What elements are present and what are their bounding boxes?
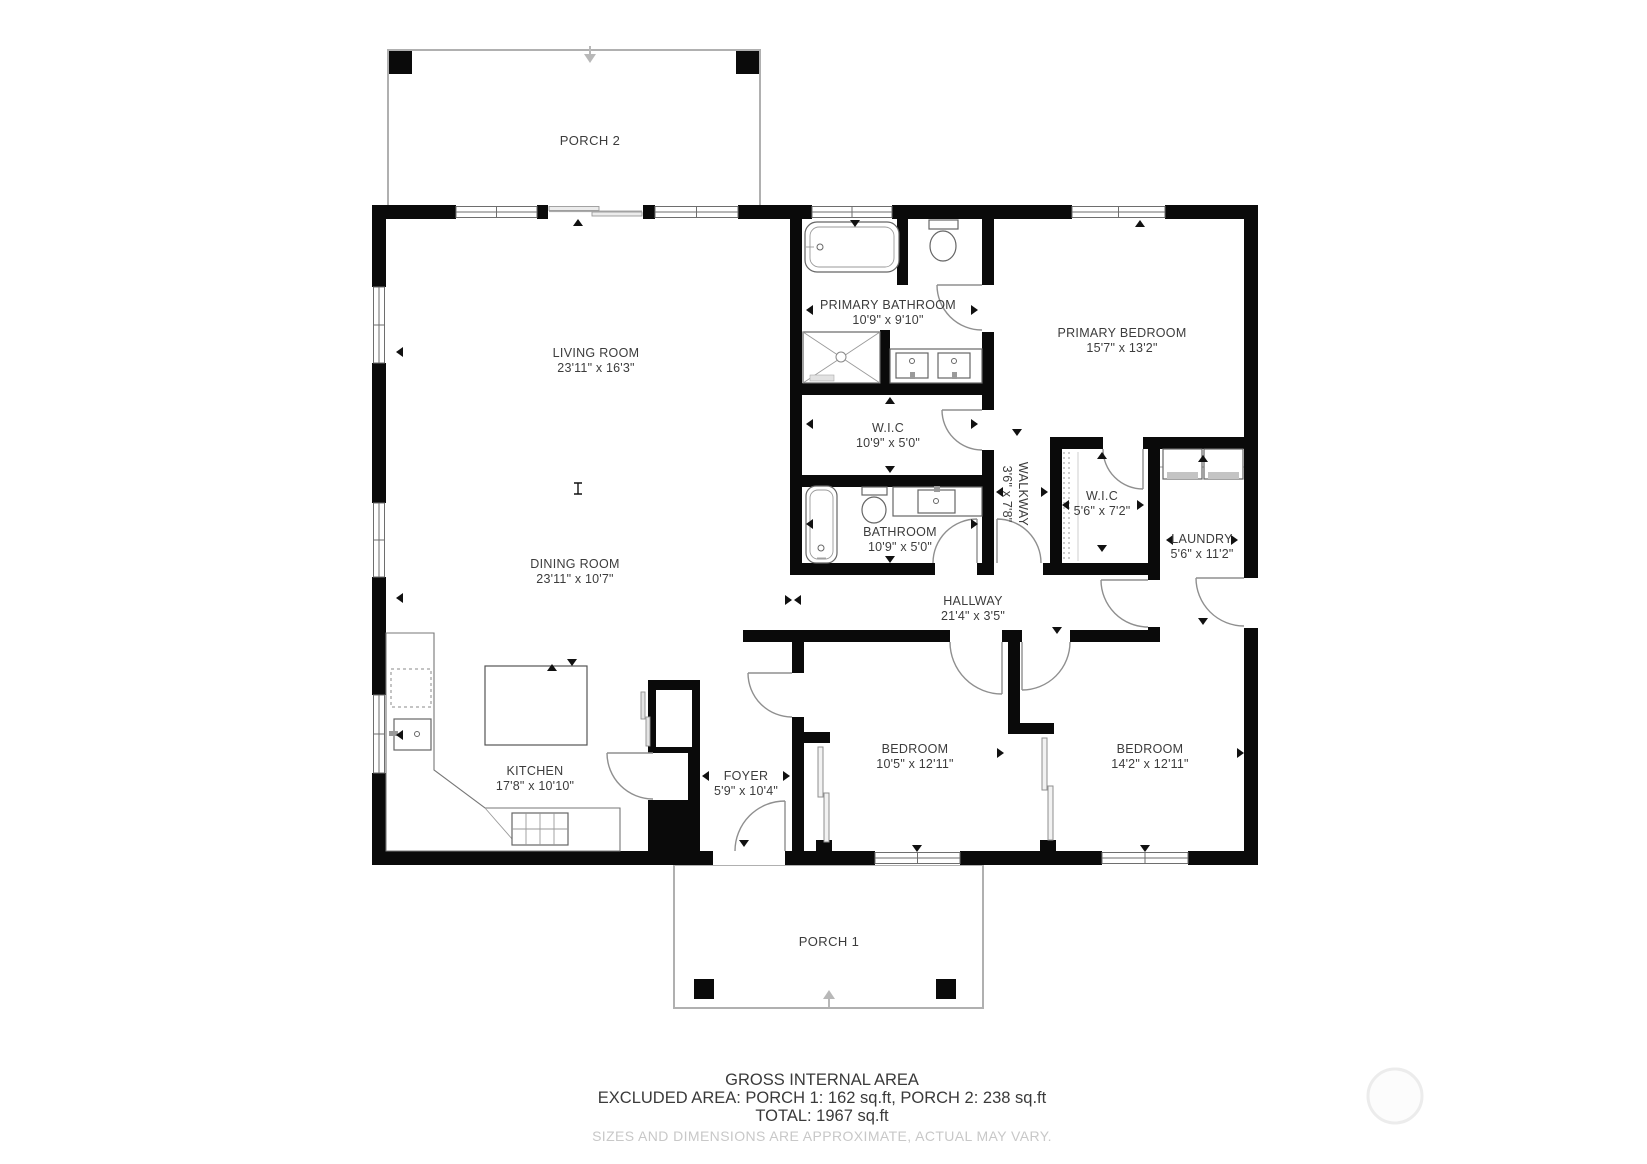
stove-icon xyxy=(512,813,568,845)
vanity-icon xyxy=(893,486,982,516)
washer-dryer-icon xyxy=(1160,449,1244,479)
double-vanity-icon xyxy=(890,349,982,383)
windows xyxy=(374,207,1189,864)
room-label-primary-bedroom: PRIMARY BEDROOM xyxy=(1057,326,1186,340)
window-icon xyxy=(812,207,892,218)
room-label-foyer: FOYER xyxy=(724,769,769,783)
watermark-logo xyxy=(1368,1069,1422,1123)
room-dims-bedroom-1: 10'5" x 12'11" xyxy=(876,757,953,771)
room-label-kitchen: KITCHEN xyxy=(507,764,564,778)
room-label-porch-1: PORCH 1 xyxy=(799,934,860,949)
room-label-bedroom-1: BEDROOM xyxy=(882,742,949,756)
door-icon xyxy=(607,753,653,799)
window-icon xyxy=(374,503,385,577)
toilet-icon xyxy=(862,487,887,523)
room-label-bedroom-2: BEDROOM xyxy=(1117,742,1184,756)
door-icon xyxy=(1103,449,1143,489)
kitchen-island xyxy=(485,666,587,745)
porch-2 xyxy=(388,46,760,207)
room-dims-living-room: 23'11" x 16'3" xyxy=(557,361,634,375)
room-label-laundry: LAUNDRY xyxy=(1171,532,1233,546)
room-label-hallway: HALLWAY xyxy=(943,594,1003,608)
footer: GROSS INTERNAL AREA EXCLUDED AREA: PORCH… xyxy=(592,1071,1052,1144)
porch-post xyxy=(936,979,956,999)
room-label-dining-room: DINING ROOM xyxy=(530,557,619,571)
footer-disclaimer: SIZES AND DIMENSIONS ARE APPROXIMATE, AC… xyxy=(592,1128,1052,1144)
room-dims-dining-room: 23'11" x 10'7" xyxy=(536,572,613,586)
door-icon xyxy=(942,410,982,450)
door-icon xyxy=(933,519,977,563)
porch-post xyxy=(736,51,759,74)
room-label-primary-bathroom: PRIMARY BATHROOM xyxy=(820,298,956,312)
room-label-wic-primary: W.I.C xyxy=(872,421,904,435)
room-label-bathroom: BATHROOM xyxy=(863,525,937,539)
room-dims-wic-hall: 5'6" x 7'2" xyxy=(1074,504,1131,518)
room-dims-primary-bathroom: 10'9" x 9'10" xyxy=(852,313,923,327)
room-dims-bedroom-2: 14'2" x 12'11" xyxy=(1111,757,1188,771)
door-icon xyxy=(748,673,792,717)
door-icon xyxy=(1022,642,1070,690)
room-dims-hallway: 21'4" x 3'5" xyxy=(941,609,1005,623)
room-dims-walkway: 3'6" x 7'8" xyxy=(1000,466,1014,523)
room-dims-kitchen: 17'8" x 10'10" xyxy=(496,779,574,793)
room-label-porch-2: PORCH 2 xyxy=(560,133,621,148)
room-dims-bathroom: 10'9" x 5'0" xyxy=(868,540,932,554)
window-icon xyxy=(374,287,385,363)
footer-excluded-area: EXCLUDED AREA: PORCH 1: 162 sq.ft, PORCH… xyxy=(598,1089,1047,1107)
window-icon xyxy=(655,207,738,218)
toilet-icon xyxy=(929,220,958,261)
porch-post xyxy=(389,51,412,74)
door-icon xyxy=(950,642,1002,694)
floor-plan-page: PORCH 2 PORCH 1 LIVING ROOM 23'11" x 16'… xyxy=(0,0,1647,1164)
shower-icon xyxy=(803,332,880,383)
floor-plan-canvas: PORCH 2 PORCH 1 LIVING ROOM 23'11" x 16'… xyxy=(0,0,1647,1164)
porch-post xyxy=(694,979,714,999)
window-icon xyxy=(456,207,537,218)
window-icon xyxy=(374,695,385,773)
door-icon xyxy=(1101,580,1148,627)
footer-gross-area: GROSS INTERNAL AREA xyxy=(725,1071,919,1089)
room-dims-laundry: 5'6" x 11'2" xyxy=(1170,547,1233,561)
room-label-walkway: WALKWAY xyxy=(1016,462,1030,527)
room-dims-primary-bedroom: 15'7" x 13'2" xyxy=(1086,341,1157,355)
room-dims-foyer: 5'9" x 10'4" xyxy=(714,784,778,798)
window-icon xyxy=(875,853,960,864)
room-dims-wic-primary: 10'9" x 5'0" xyxy=(856,436,920,450)
window-icon xyxy=(1102,853,1188,864)
window-icon xyxy=(1072,207,1165,218)
bathtub-icon xyxy=(805,222,899,272)
room-label-living-room: LIVING ROOM xyxy=(553,346,640,360)
room-label-wic-hall: W.I.C xyxy=(1086,489,1118,503)
closet-sliding-door-icon xyxy=(641,692,1053,842)
footer-total-area: TOTAL: 1967 sq.ft xyxy=(755,1107,889,1125)
kitchen-sink-icon xyxy=(389,719,431,750)
